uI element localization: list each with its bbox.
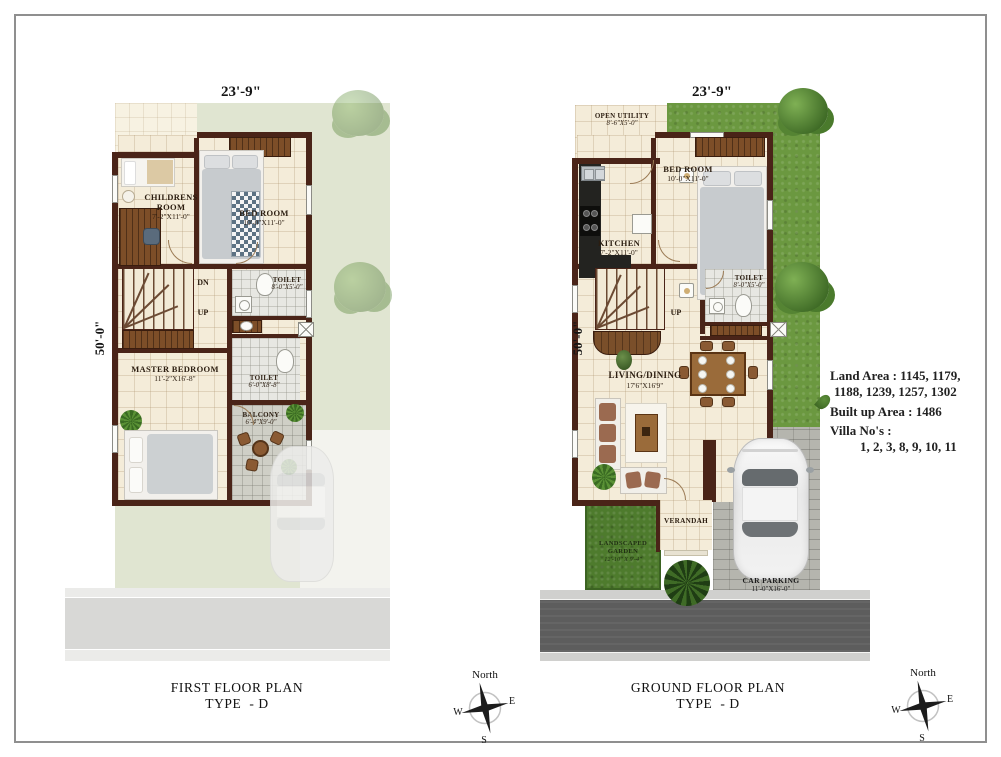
- compass-west-label: W: [891, 705, 901, 716]
- verandah-step: [664, 550, 708, 556]
- tree-icon: [775, 262, 829, 312]
- burner: [583, 224, 590, 231]
- compass-south-label: S: [919, 733, 925, 742]
- gf-road: [540, 590, 870, 660]
- gf-kitchen-label: KITCHEN 7'-2"X11'-0": [588, 238, 650, 257]
- window: [306, 185, 312, 215]
- ff-master-bedroom-label: MASTER BEDROOM 11'-2"X16'-8": [128, 364, 222, 383]
- stairs-up-label: UP: [190, 308, 216, 318]
- compass-rose-icon: North E W S: [450, 666, 520, 744]
- gf-caption-type: TYPE - D: [618, 696, 798, 712]
- wardrobe: [695, 137, 765, 157]
- bookshelf: [122, 330, 194, 349]
- villa-numbers-label: Villa No's :: [830, 423, 1000, 439]
- window: [767, 360, 773, 390]
- built-up-area: Built up Area : 1486: [830, 404, 1000, 420]
- floor-plan-sheet: DN UP TOILET 8'-0"X5'-0" TOILET 6'-0"X8'…: [0, 0, 1001, 757]
- nightstand: [679, 283, 694, 298]
- gf-wall: [703, 440, 716, 502]
- ff-toilet-upper-label: TOILET 8'-0"X5'-0": [268, 276, 306, 293]
- sofa-cushion: [599, 403, 616, 421]
- coffee-table: [635, 414, 658, 452]
- car-roof: [277, 487, 325, 517]
- burner: [591, 210, 598, 217]
- car-roof: [742, 487, 798, 521]
- room-name: VERANDAH: [660, 517, 712, 526]
- toilet-wc: [735, 294, 752, 317]
- room-dims: 11'-0"X16'-0": [732, 585, 810, 593]
- tree-icon: [334, 262, 386, 312]
- land-area-line2: 1188, 1239, 1257, 1302: [830, 384, 1000, 400]
- car-rear-window: [277, 518, 325, 530]
- window: [572, 285, 578, 313]
- ff-height-dimension: 50'-0": [92, 310, 108, 366]
- gf-wall: [700, 336, 767, 340]
- ff-caption: FIRST FLOOR PLAN TYPE - D: [147, 680, 327, 712]
- sofa-cushion: [625, 471, 642, 489]
- pillow: [129, 437, 143, 463]
- tree-icon: [778, 88, 828, 134]
- ff-bed-room-label: BED ROOM 10'-0"X11'-0": [225, 208, 303, 227]
- pillow: [124, 161, 136, 185]
- dining-chair: [748, 366, 758, 379]
- washer-door: [239, 300, 250, 311]
- room-dims: 11'-2"X16'-8": [128, 374, 222, 383]
- plate: [698, 356, 707, 365]
- storage-shelf: [710, 325, 762, 336]
- room-name: CAR PARKING: [732, 576, 810, 585]
- duct-shaft: [298, 322, 314, 337]
- dining-chair: [700, 341, 713, 351]
- gf-caption-title: GROUND FLOOR PLAN: [618, 680, 798, 696]
- patio-chair: [245, 458, 259, 472]
- gf-height-dimension: 50'-0": [570, 310, 586, 366]
- pillow: [129, 467, 143, 493]
- ff-staircase: [122, 268, 194, 330]
- ff-road: [65, 588, 390, 660]
- wash-basin: [240, 321, 253, 331]
- plant: [120, 410, 142, 432]
- room-name: KITCHEN: [588, 238, 650, 248]
- room-name: TOILET: [732, 274, 766, 282]
- ff-toilet-lower-label: TOILET 6'-0"X8'-8": [240, 374, 288, 391]
- car-ghost: [270, 446, 334, 582]
- pillow: [204, 155, 230, 169]
- gf-wall: [651, 138, 656, 264]
- desk-chair: [143, 228, 160, 245]
- stair-line: [596, 286, 640, 329]
- stove: [580, 206, 600, 236]
- compass-west-label: W: [453, 707, 463, 718]
- project-info-block: Land Area : 1145, 1179, 1188, 1239, 1257…: [830, 368, 1000, 455]
- pillow: [232, 155, 258, 169]
- dining-chair: [722, 397, 735, 407]
- room-name: TOILET: [240, 374, 288, 382]
- plate: [726, 356, 735, 365]
- room-name: MASTER BEDROOM: [128, 364, 222, 374]
- loveseat: [620, 467, 667, 494]
- villa-numbers: 1, 2, 3, 8, 9, 10, 11: [830, 439, 1000, 455]
- washing-machine: [235, 296, 252, 313]
- gf-landscaped-garden-label: LANDSCAPED GARDEN 12'-10" X 9'-4": [586, 540, 660, 563]
- room-dims: 10'-0"X11'-0": [225, 218, 303, 227]
- room-name: LIVING/DINING: [604, 370, 686, 381]
- stair-line: [123, 284, 169, 328]
- stairs-dn-label: DN: [190, 278, 216, 288]
- land-area-line1: Land Area : 1145, 1179,: [830, 368, 1000, 384]
- duct-shaft: [770, 322, 787, 337]
- patio-table: [252, 440, 269, 457]
- room-name: BED ROOM: [225, 208, 303, 218]
- ff-width-dimension: 23'-9": [201, 84, 281, 101]
- plant: [286, 404, 304, 422]
- stairs-up-label: UP: [664, 308, 688, 318]
- room-name: BED ROOM: [655, 164, 721, 174]
- room-dims: 17'6"X16'9": [604, 381, 686, 390]
- burner: [583, 210, 590, 217]
- window: [572, 430, 578, 458]
- room-dims: 8'-0"X5'-0": [268, 284, 306, 292]
- gf-road-asphalt: [540, 600, 870, 652]
- gf-toilet-label: TOILET 8'-0"X5'-0": [732, 274, 766, 291]
- gf-open-utility-label: OPEN UTILITY 8'-6"X5'-0": [583, 112, 661, 129]
- master-bed: [124, 430, 218, 500]
- room-dims: 7'-2"X11'-0": [588, 248, 650, 257]
- gf-verandah-label: VERANDAH: [660, 517, 712, 526]
- gf-bed-room-label: BED ROOM 10'-0"X11'-0": [655, 164, 721, 183]
- compass-east-label: E: [947, 694, 953, 705]
- room-dims: 10'-0"X11'-0": [655, 174, 721, 183]
- compass-east-label: E: [509, 696, 515, 707]
- floor-plant: [616, 350, 632, 370]
- plant: [592, 464, 616, 490]
- toilet-wc: [276, 349, 294, 373]
- compass-north-label: North: [910, 667, 936, 679]
- plate: [726, 384, 735, 393]
- room-dims: 6'-0"X8'-8": [240, 382, 288, 390]
- compass-north-label: North: [472, 669, 498, 681]
- lamp: [684, 288, 690, 294]
- sofa-cushion: [644, 471, 661, 489]
- compass-south-label: S: [481, 735, 487, 744]
- childrens-bed: [121, 158, 175, 187]
- ff-caption-title: FIRST FLOOR PLAN: [147, 680, 327, 696]
- window: [306, 290, 312, 318]
- compass-rose-icon: North E W S: [888, 664, 958, 742]
- kitchen-island: [632, 214, 652, 234]
- gf-width-dimension: 23'-9": [672, 84, 752, 101]
- burner: [591, 224, 598, 231]
- car-grill: [742, 449, 798, 452]
- blanket: [147, 160, 173, 184]
- gf-caption: GROUND FLOOR PLAN TYPE - D: [618, 680, 798, 712]
- ff-caption-type: TYPE - D: [147, 696, 327, 712]
- window: [767, 200, 773, 230]
- room-dims: 8'-6"X5'-0": [583, 120, 661, 128]
- window: [112, 175, 118, 203]
- tree-icon: [332, 90, 384, 136]
- ff-road-shoulder-top: [65, 588, 390, 598]
- sink-bowl: [595, 169, 605, 180]
- room-name: TOILET: [268, 276, 306, 284]
- ff-road-asphalt: [65, 598, 390, 649]
- sofa-cushion: [599, 445, 616, 463]
- car: [733, 438, 809, 580]
- sink-bowl: [584, 169, 594, 180]
- room-dims: 12'-10" X 9'-4": [586, 556, 660, 563]
- room-name: OPEN UTILITY: [583, 112, 661, 120]
- window: [112, 425, 118, 453]
- plate: [726, 370, 735, 379]
- table-decor: [642, 427, 650, 436]
- room-name: LANDSCAPED GARDEN: [586, 540, 660, 556]
- kitchen-sink: [581, 166, 605, 181]
- ff-road-shoulder-bottom: [65, 649, 390, 661]
- car-rear-window: [742, 522, 798, 537]
- sofa-cushion: [599, 424, 616, 442]
- gf-living-dining-label: LIVING/DINING 17'6"X16'9": [604, 370, 686, 390]
- palm-tree-icon: [664, 560, 710, 606]
- blanket: [147, 434, 213, 494]
- car-mirror: [727, 467, 735, 473]
- gf-road-shoulder-bottom: [540, 652, 870, 661]
- plate: [698, 384, 707, 393]
- living-rug: [625, 403, 667, 463]
- washing-machine: [709, 298, 725, 314]
- plate: [698, 370, 707, 379]
- washer-door: [713, 302, 723, 312]
- car-windshield: [277, 473, 325, 486]
- gf-car-parking-label: CAR PARKING 11'-0"X16'-0": [732, 576, 810, 594]
- dining-chair: [722, 341, 735, 351]
- pillow: [734, 171, 762, 186]
- dining-chair: [700, 397, 713, 407]
- gf-wall: [572, 500, 664, 506]
- car-windshield: [742, 469, 798, 486]
- car-mirror: [806, 467, 814, 473]
- room-dims: 8'-0"X5'-0": [732, 282, 766, 290]
- gf-staircase: [595, 268, 665, 330]
- sofa: [595, 398, 621, 470]
